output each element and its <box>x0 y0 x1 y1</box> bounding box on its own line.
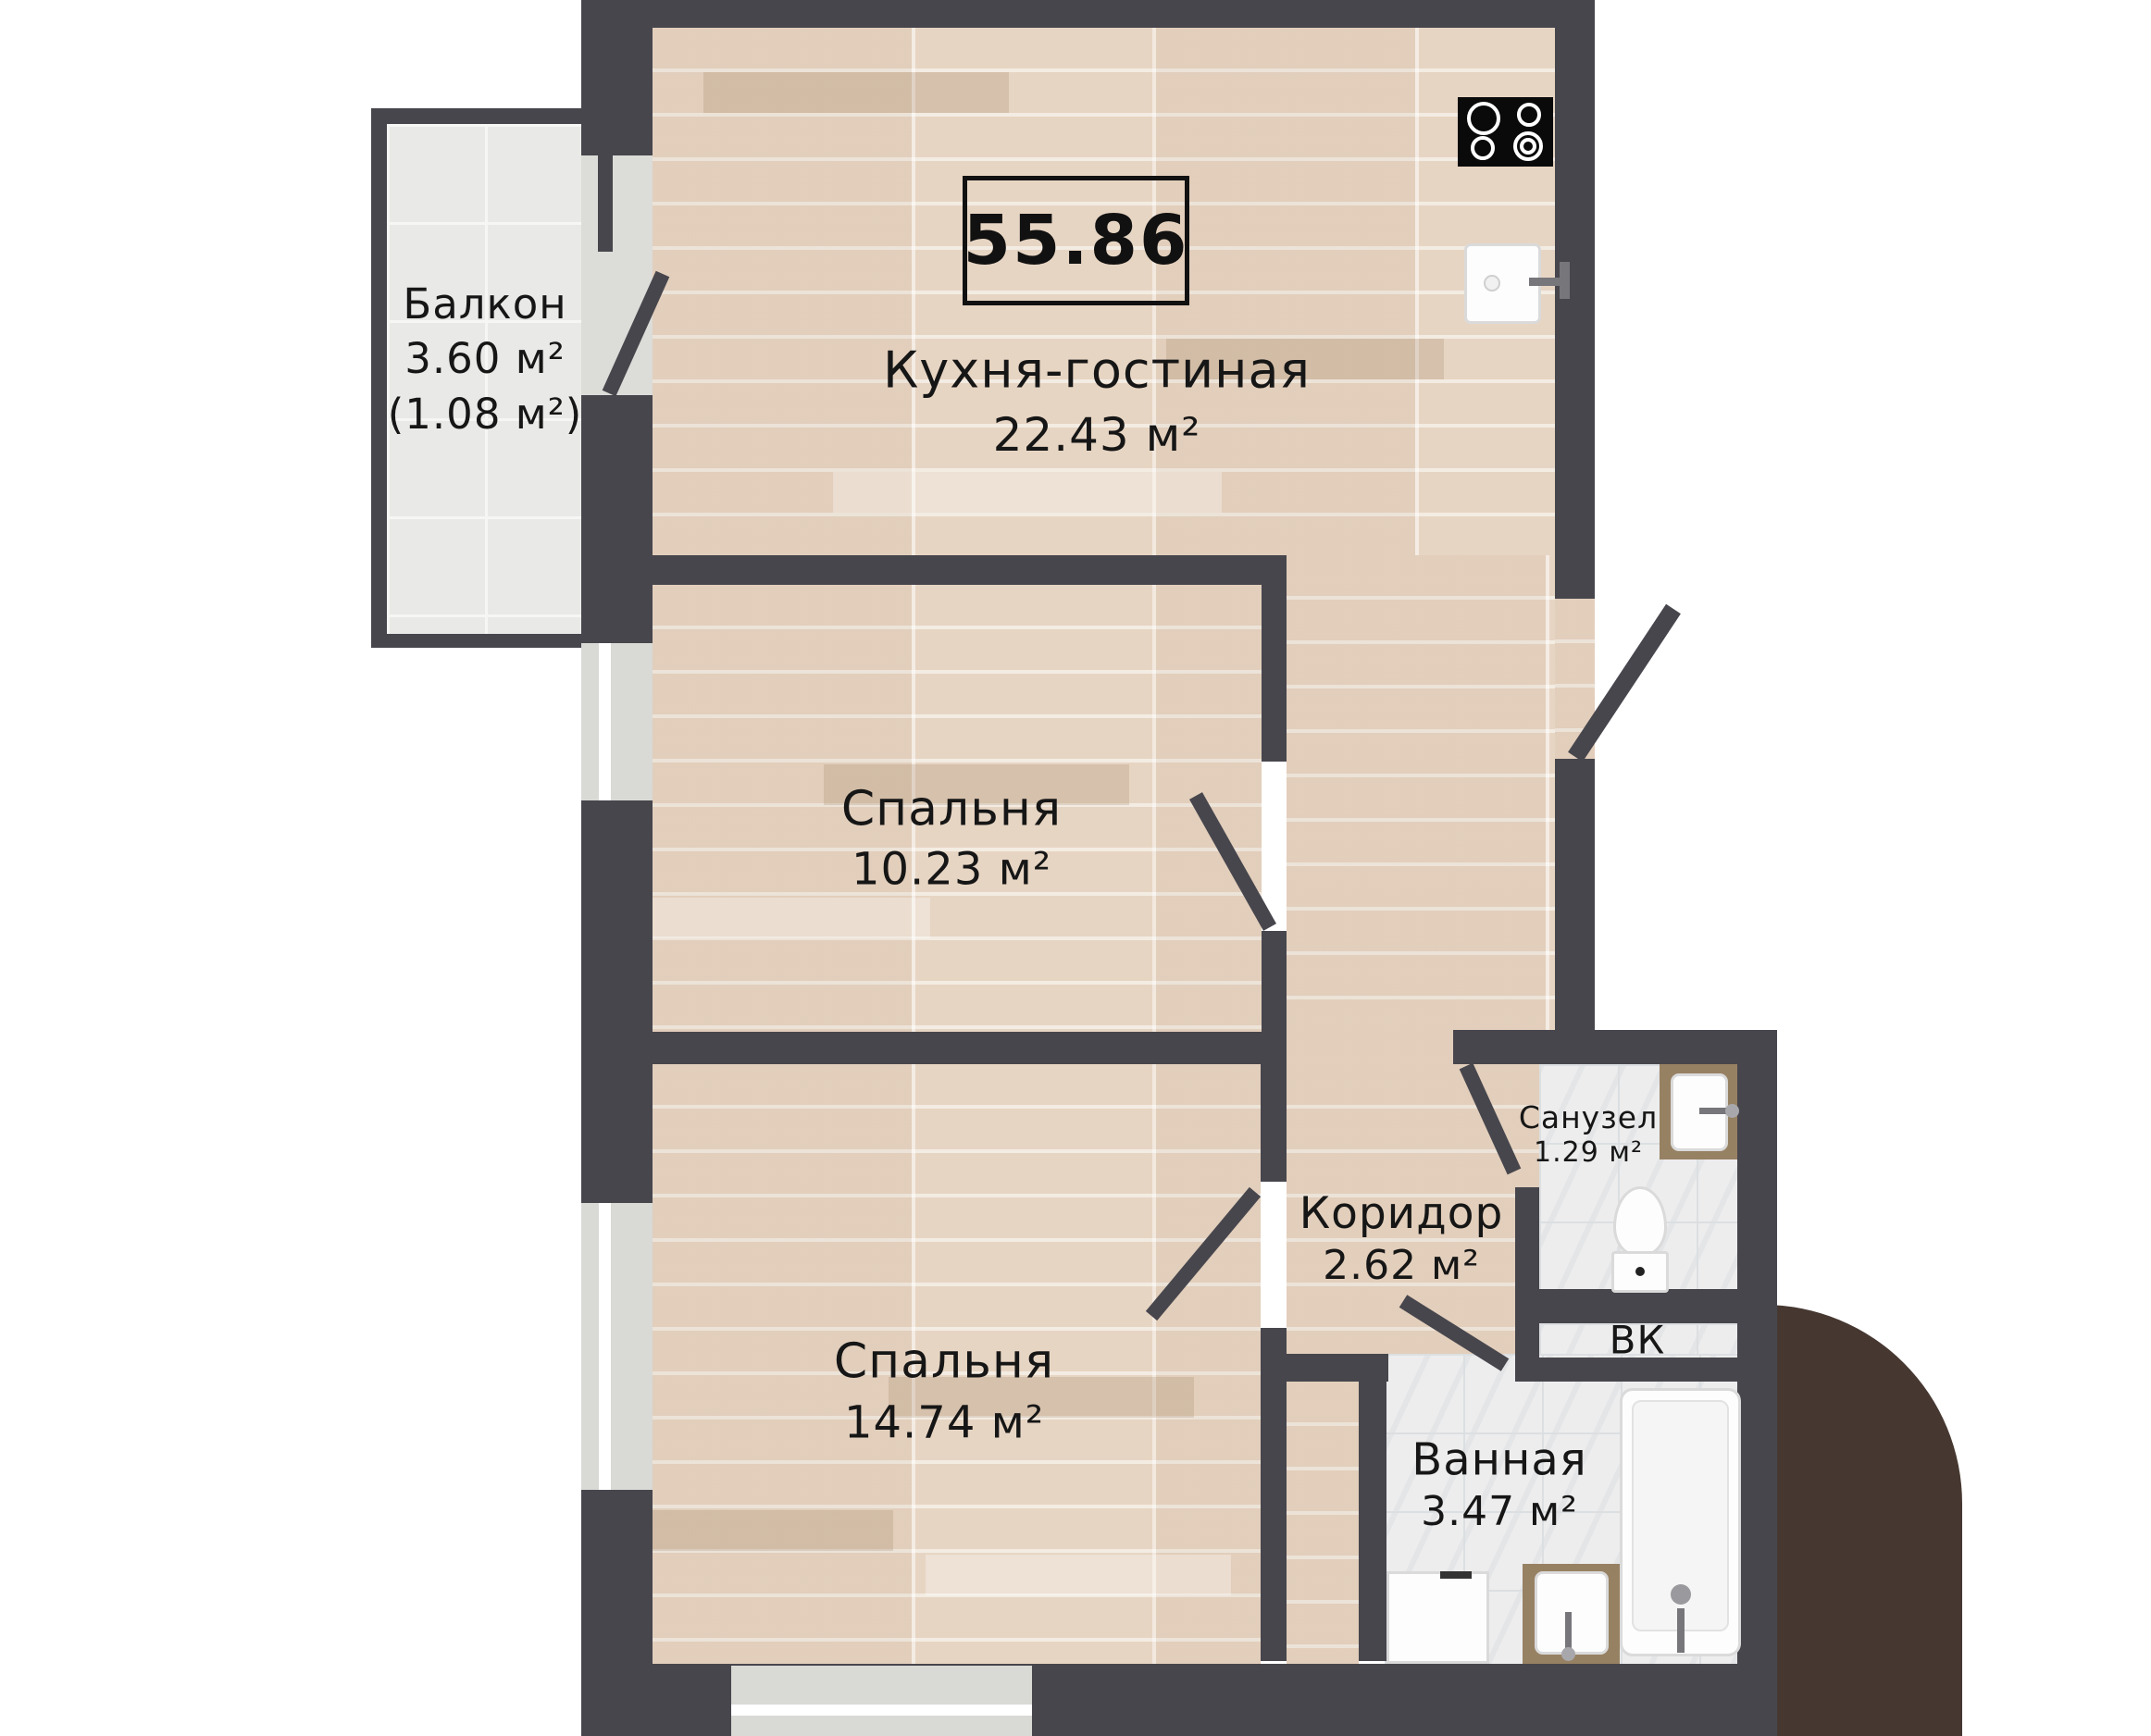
corridor-label: Коридор <box>1299 1185 1504 1243</box>
corridor-name: Коридор <box>1299 1185 1504 1243</box>
bathroom-door-leaf <box>1403 1301 1505 1365</box>
wc-label: Санузел <box>1519 1097 1658 1138</box>
duct-text: ВК <box>1610 1314 1666 1365</box>
wc-name: Санузел <box>1519 1097 1658 1138</box>
bathroom-name: Ванная <box>1411 1431 1586 1489</box>
floor-plan: 55.86 Кухня-гостиная 22.43 м² Балкон 3.6… <box>0 0 2151 1736</box>
duct-label: ВК <box>1610 1314 1666 1365</box>
wc-area: 1.29 м² <box>1534 1135 1643 1172</box>
wc-door-leaf <box>1466 1066 1514 1172</box>
wc-area-label: 1.29 м² <box>1534 1135 1643 1172</box>
bedroom2-door-leaf <box>1151 1192 1255 1316</box>
stove-burners-icon <box>1469 104 1541 159</box>
total-area-box: 55.86 <box>963 176 1189 305</box>
bedroom2-name: Спальня <box>834 1331 1054 1395</box>
balcony-area-extra: (1.08 м²) <box>388 387 583 441</box>
total-area-value: 55.86 <box>963 201 1188 280</box>
bedroom2-area: 14.74 м² <box>844 1394 1044 1452</box>
bathroom-area: 3.47 м² <box>1421 1485 1578 1539</box>
balcony-area: 3.60 м² <box>388 331 583 386</box>
balcony-name: Балкон <box>388 277 583 331</box>
bedroom2-area-label: 14.74 м² <box>844 1394 1044 1452</box>
bedroom1-door-leaf <box>1196 796 1270 927</box>
bedroom2-label: Спальня <box>834 1331 1054 1395</box>
entrance-door-leaf <box>1575 609 1673 757</box>
bathroom-label: Ванная <box>1411 1431 1586 1489</box>
balcony-door-leaf <box>609 274 663 393</box>
bedroom1-name: Спальня <box>841 778 1062 842</box>
kitchen-area: 22.43 м² <box>993 404 1201 465</box>
bathroom-area-label: 3.47 м² <box>1421 1485 1578 1539</box>
balcony-label: Балкон 3.60 м² (1.08 м²) <box>388 277 583 441</box>
corridor-area-label: 2.62 м² <box>1323 1239 1480 1293</box>
bedroom1-label: Спальня <box>841 778 1062 842</box>
kitchen-name: Кухня-гостиная <box>883 337 1311 403</box>
corridor-area: 2.62 м² <box>1323 1239 1480 1293</box>
kitchen-area-label: 22.43 м² <box>993 404 1201 465</box>
bedroom1-area: 10.23 м² <box>852 840 1051 899</box>
bedroom1-area-label: 10.23 м² <box>852 840 1051 899</box>
kitchen-label: Кухня-гостиная <box>883 337 1311 403</box>
